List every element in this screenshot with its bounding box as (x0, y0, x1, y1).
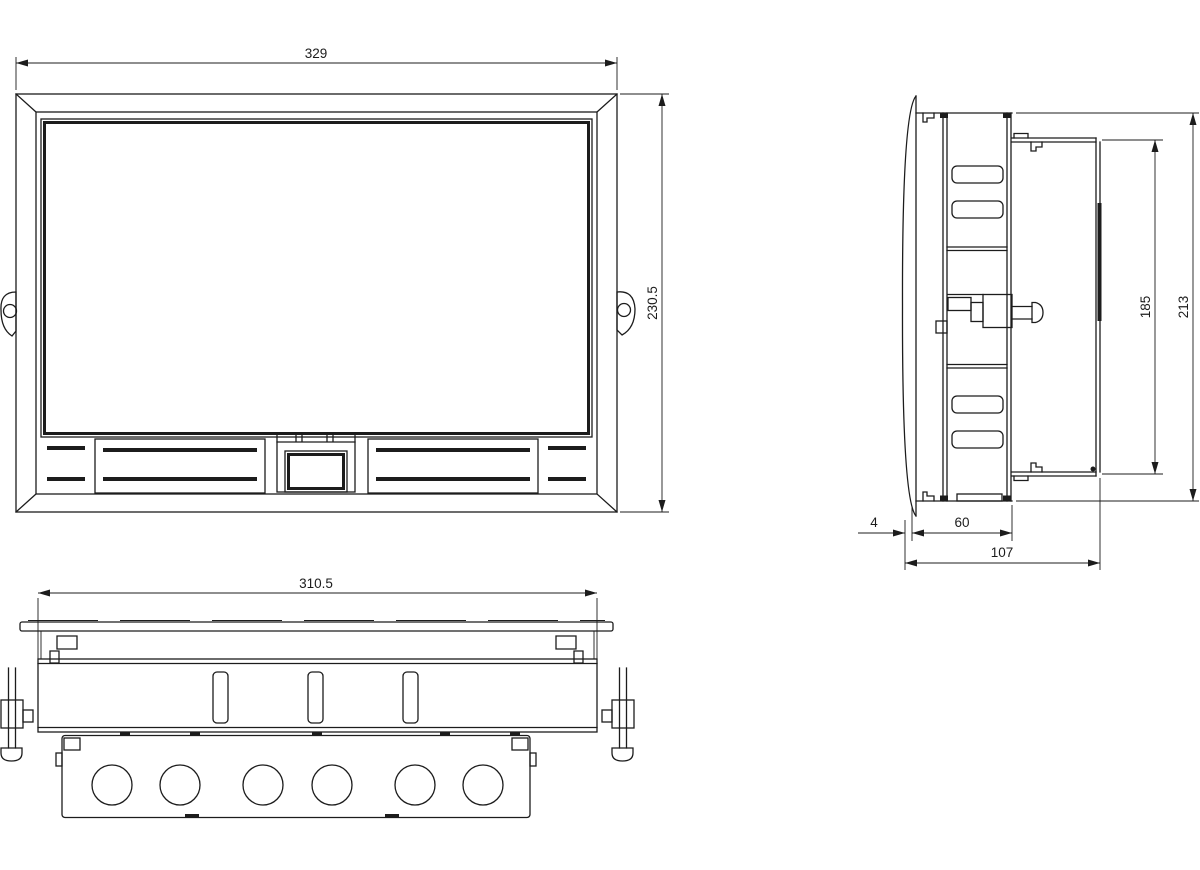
cable-entry-hole (395, 765, 435, 805)
side-connector-bump (1098, 203, 1102, 321)
dim-cutout-width: 310.5 (38, 576, 597, 662)
front-key-panel-right-bar (376, 477, 530, 481)
bottom-terminal-cover (56, 736, 536, 819)
front-key-panel-right-bar (376, 448, 530, 452)
bottom-vent-slot (403, 672, 418, 723)
clamp-screw-head (1, 748, 22, 761)
bottom-body (38, 659, 597, 736)
front-right-vent-bar (548, 477, 586, 481)
dim-label-overall-height: 213 (1176, 296, 1191, 319)
bottom-vent-slot (213, 672, 228, 723)
cable-entry-hole (160, 765, 200, 805)
dim-label-front-width: 329 (305, 46, 328, 61)
front-view: 329 (1, 46, 669, 512)
front-left-vent-bar (47, 446, 85, 450)
dim-chassis-height: 185 (1102, 140, 1163, 474)
front-left-vent-bar (47, 477, 85, 481)
side-foot-bar (957, 494, 1002, 501)
front-center-door (277, 433, 355, 492)
side-vent-slot (952, 396, 1003, 413)
dim-front-width: 329 (16, 46, 617, 90)
dim-front-height: 230.5 (620, 94, 669, 512)
side-vent-slot (952, 201, 1003, 218)
bottom-clamp-left (1, 668, 33, 761)
bottom-vent-slot (308, 672, 323, 723)
front-usb-cover (289, 455, 344, 489)
side-clamp-screw (936, 295, 1043, 334)
front-right-vent-bar (548, 446, 586, 450)
bottom-view: 310.5 (1, 576, 634, 818)
dim-depths: 4 60 107 (858, 478, 1100, 570)
engineering-drawing-page: 329 (0, 0, 1200, 870)
bottom-clamp-right (602, 668, 634, 761)
dim-label-overall-depth: 107 (991, 545, 1014, 560)
cable-entry-hole (463, 765, 503, 805)
dim-label-front-height: 230.5 (645, 286, 660, 320)
front-key-panel-left-bar (103, 477, 257, 481)
side-vent-slot (952, 431, 1003, 448)
front-key-panel-left (95, 439, 265, 493)
side-bezel (902, 96, 916, 516)
front-key-panel-right (368, 439, 538, 493)
cable-entry-hole (243, 765, 283, 805)
clamp-screw-head (612, 748, 633, 761)
side-top-latch (923, 113, 934, 122)
front-screen-outer (41, 119, 592, 437)
dim-label-chassis-height: 185 (1138, 296, 1153, 319)
bottom-bezel-plate (20, 621, 613, 664)
side-vent-slot (952, 166, 1003, 183)
cable-entry-hole (312, 765, 352, 805)
side-bottom-latch (923, 492, 934, 501)
side-body (916, 113, 1012, 501)
dim-overall-height: 213 (1016, 113, 1199, 501)
technical-drawing: 329 (0, 0, 1200, 870)
front-screen (45, 123, 589, 434)
front-mount-clip-right (617, 292, 635, 335)
dim-label-bezel-depth: 4 (870, 515, 878, 530)
front-key-panel-left-bar (103, 448, 257, 452)
dim-label-cutout-width: 310.5 (299, 576, 333, 591)
front-control-strip (47, 433, 586, 493)
side-view: 185 213 4 60 107 (858, 96, 1199, 570)
cable-entry-hole (92, 765, 132, 805)
front-mount-clip-left (1, 292, 17, 336)
dim-label-body-depth: 60 (954, 515, 969, 530)
clamp-screw-head (1032, 303, 1043, 323)
